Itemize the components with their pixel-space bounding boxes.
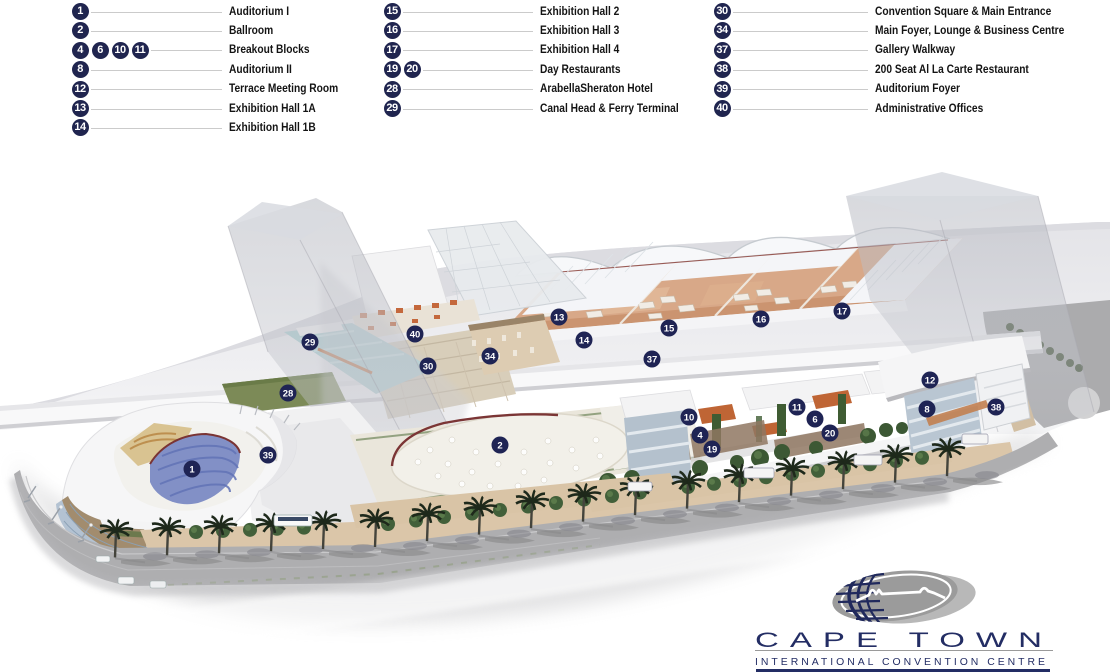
svg-text:INTERNATIONAL CONVENTION CENTR: INTERNATIONAL CONVENTION CENTRE — [755, 656, 1048, 668]
svg-text:39: 39 — [263, 450, 274, 461]
svg-text:28: 28 — [283, 388, 294, 399]
svg-text:2: 2 — [497, 440, 502, 451]
svg-text:12: 12 — [925, 375, 936, 386]
svg-text:30: 30 — [423, 361, 434, 372]
svg-text:6: 6 — [812, 414, 817, 425]
svg-text:8: 8 — [924, 404, 929, 415]
svg-text:37: 37 — [647, 354, 658, 365]
svg-text:4: 4 — [697, 430, 703, 441]
svg-text:20: 20 — [825, 428, 836, 439]
svg-text:16: 16 — [756, 314, 767, 325]
svg-text:34: 34 — [485, 351, 496, 362]
svg-text:15: 15 — [664, 323, 675, 334]
svg-text:1: 1 — [189, 464, 195, 475]
svg-text:14: 14 — [579, 335, 590, 346]
svg-text:40: 40 — [410, 329, 421, 340]
svg-text:13: 13 — [554, 312, 565, 323]
svg-text:17: 17 — [837, 306, 848, 317]
svg-text:29: 29 — [305, 337, 316, 348]
svg-text:10: 10 — [684, 412, 695, 423]
svg-text:CAPE TOWN: CAPE TOWN — [755, 629, 1053, 652]
svg-text:11: 11 — [792, 402, 803, 413]
svg-text:19: 19 — [707, 444, 718, 455]
svg-text:38: 38 — [991, 402, 1002, 413]
